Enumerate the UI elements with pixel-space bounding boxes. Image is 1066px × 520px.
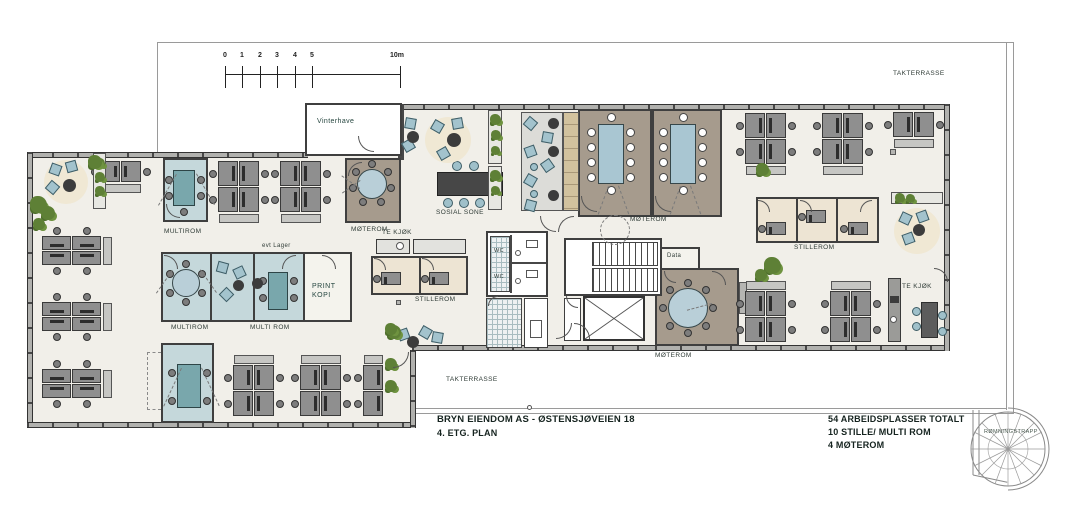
kitchen-unit-detail: [890, 296, 899, 303]
coffee-table: [548, 118, 559, 129]
meeting-chair: [626, 143, 635, 152]
coffee-table: [447, 133, 461, 147]
scale-tick: [312, 66, 313, 88]
wall-left-wing-east-low: [410, 350, 416, 428]
office-chair: [290, 294, 298, 302]
monitor: [50, 254, 64, 257]
office-chair: [873, 326, 881, 334]
office-chair: [143, 168, 151, 176]
office-chair: [53, 400, 61, 408]
scale-label-0: 0: [223, 52, 227, 59]
label-multirom-mid-1: MULTIROM: [171, 324, 208, 331]
kitchen-counter-left-1: [376, 239, 410, 254]
floor-plan: 0 1 2 3 4 5 10m TAKTERRASSE TAKTERRASSE …: [0, 0, 1066, 520]
desk: [218, 187, 238, 212]
small-box-right-wing: [890, 149, 896, 155]
kitchen-tall-unit-right: [888, 278, 901, 342]
desk-return-panel: [103, 370, 112, 398]
office-chair: [83, 400, 91, 408]
lounge-chair: [404, 117, 417, 130]
meeting-chair: [626, 158, 635, 167]
kitchen-counter-left-2: [413, 239, 466, 254]
meeting-chair: [698, 173, 707, 182]
office-chair: [209, 170, 217, 178]
lounge-chair: [469, 161, 479, 171]
monitor: [844, 322, 847, 337]
meeting-chair: [679, 113, 688, 122]
terrace-outline-bottom-1: [416, 408, 1007, 409]
office-chair: [83, 333, 91, 341]
desk-return-panel: [101, 184, 141, 193]
lounge-chair: [530, 190, 538, 198]
office-chair: [813, 148, 821, 156]
desk: [233, 391, 253, 416]
lounge-chair: [938, 311, 947, 320]
office-chair: [788, 326, 796, 334]
desk: [72, 236, 101, 250]
lounge-chair: [912, 307, 921, 316]
office-chair: [354, 400, 362, 408]
office-chair: [666, 322, 674, 330]
label-te-kjok-left: TE KJØK: [382, 229, 412, 236]
label-romningstrapp: RØMNINGSTRAPP: [984, 429, 1038, 435]
desk-return-panel: [364, 355, 383, 364]
office-chair: [271, 170, 279, 178]
banquette-wood-shelf: [563, 112, 579, 211]
office-chair: [736, 300, 744, 308]
lounge-chair: [475, 198, 485, 208]
office-chair: [702, 322, 710, 330]
desk-return-panel: [301, 355, 341, 364]
monitor: [294, 166, 297, 181]
lounge-chair: [938, 327, 947, 336]
scale-tick: [277, 66, 278, 88]
desk: [822, 113, 842, 138]
meeting-chair: [626, 173, 635, 182]
office-chair: [421, 275, 429, 283]
desk: [822, 139, 842, 164]
wc-sink-1: [515, 250, 521, 256]
plant: [385, 380, 397, 392]
office-chair: [323, 170, 331, 178]
wall-left-wing-west: [27, 152, 33, 428]
monitor: [769, 118, 772, 133]
label-sosial-sone: SOSIAL SONE: [436, 209, 484, 216]
coffee-table: [407, 131, 419, 143]
desk: [280, 187, 300, 212]
label-multirom-top: MULTIROM: [164, 228, 201, 235]
office-chair: [368, 160, 376, 168]
scale-tick: [225, 66, 226, 88]
office-chair: [873, 300, 881, 308]
office-chair: [865, 122, 873, 130]
office-chair: [168, 369, 176, 377]
monitor: [304, 192, 307, 207]
meeting-chair: [698, 128, 707, 137]
lounge-chair: [431, 331, 444, 344]
meeting-chair: [626, 128, 635, 137]
monitor: [324, 396, 327, 411]
wc-divider-h: [512, 262, 546, 264]
terrace-outline-left: [157, 42, 158, 154]
coffee-table: [548, 190, 559, 201]
desk: [300, 391, 320, 416]
office-chair: [813, 122, 821, 130]
desk: [42, 369, 71, 383]
office-chair: [736, 148, 744, 156]
kitchen-sink-left: [396, 242, 404, 250]
meeting-chair: [587, 158, 596, 167]
desk-return-panel: [746, 281, 786, 290]
label-data: Data: [667, 253, 681, 259]
monitor: [314, 370, 317, 385]
plant: [490, 114, 501, 125]
plant: [33, 218, 45, 230]
coffee-table: [233, 280, 244, 291]
monitor: [247, 370, 250, 385]
dashed-zone-multirom-bottom: [147, 352, 161, 410]
label-vinterhave: Vinterhave: [317, 118, 354, 125]
desk: [233, 365, 253, 390]
stair-treads-lower: [592, 268, 658, 292]
terrace-outline-top: [157, 42, 1013, 43]
meeting-chair: [587, 143, 596, 152]
terrace-outline-right-outer: [1013, 42, 1014, 412]
office-chair: [865, 148, 873, 156]
scale-label-5: 5: [310, 52, 314, 59]
plant: [95, 186, 105, 196]
conference-table: [598, 124, 624, 184]
office-chair: [83, 360, 91, 368]
monitor: [50, 387, 64, 390]
office-chair: [384, 168, 392, 176]
office-chair: [261, 196, 269, 204]
desk: [745, 317, 765, 342]
monitor: [854, 296, 857, 311]
monitor: [257, 370, 260, 385]
office-chair: [83, 267, 91, 275]
scale-label-2: 2: [258, 52, 262, 59]
lounge-chair: [530, 163, 538, 171]
label-takterrasse-bottom: TAKTERRASSE: [446, 376, 498, 383]
desk: [363, 391, 383, 416]
desk: [42, 302, 71, 316]
survey-dot: [527, 405, 532, 410]
office-chair: [884, 121, 892, 129]
office-chair: [83, 293, 91, 301]
meeting-chair: [659, 128, 668, 137]
wc-toilet-2: [526, 270, 538, 278]
spiral-stair: [965, 405, 1065, 500]
desk: [280, 161, 300, 186]
plant: [906, 194, 915, 203]
plant: [491, 186, 500, 195]
desk: [218, 161, 238, 186]
office-chair: [168, 397, 176, 405]
label-multirom-mid-2: MULTI ROM: [250, 324, 290, 331]
meeting-table-round: [172, 269, 200, 297]
scale-label-3: 3: [275, 52, 279, 59]
monitor: [851, 227, 854, 234]
label-wc-2: WC: [494, 274, 504, 280]
monitor: [759, 322, 762, 337]
desk-return-panel: [281, 214, 321, 223]
meeting-chair: [587, 173, 596, 182]
monitor: [917, 117, 920, 132]
meeting-table-round: [668, 288, 708, 328]
desk: [893, 112, 913, 137]
office-chair: [166, 289, 174, 297]
multi-room-table: [268, 272, 288, 310]
desk: [42, 236, 71, 250]
scale-tick: [242, 66, 243, 88]
office-chair: [53, 267, 61, 275]
monitor: [80, 310, 94, 313]
lounge-chair: [541, 131, 554, 144]
office-chair: [276, 374, 284, 382]
label-te-kjok-right: TE KJØK: [902, 283, 932, 290]
desk: [363, 365, 383, 390]
office-chair: [343, 374, 351, 382]
plant: [385, 323, 397, 335]
kitchen-sink-right: [890, 316, 897, 323]
monitor: [80, 244, 94, 247]
monitor: [809, 215, 812, 222]
plant: [491, 146, 500, 155]
meeting-chair: [698, 158, 707, 167]
office-chair: [182, 298, 190, 306]
office-chair: [377, 198, 385, 206]
label-kopi: KOPI: [312, 292, 331, 299]
plant: [490, 170, 501, 181]
office-chair: [182, 260, 190, 268]
coffee-table: [252, 278, 263, 289]
plant: [764, 257, 781, 274]
desk-return-panel: [831, 281, 871, 290]
core-fixture: [530, 320, 542, 338]
office-chair: [83, 227, 91, 235]
monitor: [846, 118, 849, 133]
plant: [491, 130, 501, 140]
desk-return-panel: [219, 214, 259, 223]
room-stillerom-right-3: [836, 197, 879, 243]
scale-label-end: 10m: [390, 52, 404, 59]
desk-return-panel: [103, 237, 112, 265]
dashed-projection-circle: [600, 215, 630, 245]
wall-left-wing-bottom: [27, 422, 416, 428]
scale-tick: [400, 66, 401, 88]
monitor: [294, 192, 297, 207]
office-chair: [197, 192, 205, 200]
office-chair: [53, 293, 61, 301]
desk: [745, 113, 765, 138]
monitor: [304, 166, 307, 181]
monitor: [114, 166, 117, 177]
monitor: [247, 396, 250, 411]
lounge-chair: [451, 117, 464, 130]
office-chair: [373, 275, 381, 283]
monitor: [50, 320, 64, 323]
label-stillerom-left: STILLEROM: [415, 296, 455, 303]
monitor: [80, 254, 94, 257]
stair-treads-upper: [592, 242, 658, 266]
office-chair: [840, 225, 848, 233]
summary-line2: 10 STILLE/ MULTI ROM: [828, 427, 931, 437]
desk: [300, 365, 320, 390]
desk-return-panel: [823, 166, 863, 175]
monitor: [257, 396, 260, 411]
plant: [895, 193, 905, 203]
monitor: [907, 117, 910, 132]
office-chair: [709, 304, 717, 312]
office-chair: [224, 400, 232, 408]
scale-bar: 0 1 2 3 4 5 10m: [225, 52, 410, 92]
monitor: [759, 144, 762, 159]
monitor: [50, 310, 64, 313]
desk: [745, 139, 765, 164]
monitor: [769, 322, 772, 337]
office-chair: [788, 148, 796, 156]
monitor: [80, 387, 94, 390]
office-chair: [53, 227, 61, 235]
monitor: [769, 296, 772, 311]
monitor: [769, 227, 772, 234]
meeting-chair: [587, 128, 596, 137]
monitor: [854, 322, 857, 337]
office-chair: [354, 374, 362, 382]
monitor: [314, 396, 317, 411]
label-wc-1: WC: [494, 248, 504, 254]
office-chair: [53, 333, 61, 341]
monitor: [769, 144, 772, 159]
office-chair: [261, 170, 269, 178]
conference-table: [670, 124, 696, 184]
desk-return-panel: [894, 139, 934, 148]
office-chair: [798, 213, 806, 221]
meeting-chair: [607, 113, 616, 122]
room-vinterhave: [305, 103, 402, 156]
meeting-chair: [698, 143, 707, 152]
office-chair: [276, 400, 284, 408]
coffee-table: [913, 224, 925, 236]
label-moterom-center: MØTEROM: [630, 216, 667, 223]
monitor: [232, 192, 235, 207]
office-chair: [203, 397, 211, 405]
office-chair: [198, 289, 206, 297]
monitor: [377, 396, 380, 411]
kitchen-island-right: [921, 302, 938, 338]
office-chair: [684, 279, 692, 287]
plant: [756, 163, 769, 176]
office-chair: [291, 374, 299, 382]
office-chair: [659, 304, 667, 312]
office-chair: [271, 196, 279, 204]
monitor: [324, 370, 327, 385]
meeting-chair: [659, 143, 668, 152]
desk: [745, 291, 765, 316]
wc-toilet-1: [526, 240, 538, 248]
coffee-table: [548, 146, 559, 157]
office-chair: [788, 122, 796, 130]
summary-line1: 54 ARBEIDSPLASSER TOTALT: [828, 414, 964, 424]
monitor: [80, 377, 94, 380]
terrace-outline-right-inner: [1006, 42, 1007, 410]
office-chair: [684, 329, 692, 337]
lounge-chair: [443, 198, 453, 208]
label-takterrasse-top: TAKTERRASSE: [893, 70, 945, 77]
lounge-chair: [459, 198, 469, 208]
scale-label-4: 4: [293, 52, 297, 59]
lounge-chair: [452, 161, 462, 171]
office-chair: [736, 122, 744, 130]
plant: [88, 155, 102, 169]
scale-label-1: 1: [240, 52, 244, 59]
office-chair: [936, 121, 944, 129]
label-stillerom-right: STILLEROM: [794, 244, 834, 251]
desk: [72, 302, 101, 316]
meeting-chair: [659, 173, 668, 182]
office-chair: [736, 326, 744, 334]
office-chair: [702, 286, 710, 294]
monitor: [432, 277, 435, 284]
lounge-chair: [912, 322, 921, 331]
plant: [755, 269, 767, 281]
office-chair: [290, 277, 298, 285]
office-chair: [788, 300, 796, 308]
label-evt-lager: evt Lager: [262, 243, 291, 249]
meeting-chair: [659, 158, 668, 167]
desk: [72, 369, 101, 383]
plant: [95, 172, 105, 182]
scale-tick: [295, 66, 296, 88]
small-box-mid: [396, 300, 401, 305]
elevator-shaft: [583, 296, 645, 341]
office-chair: [291, 400, 299, 408]
office-chair: [165, 192, 173, 200]
monitor: [80, 320, 94, 323]
monitor: [759, 118, 762, 133]
wc-sink-2: [515, 278, 521, 284]
monitor: [846, 144, 849, 159]
desk-return-panel: [234, 355, 274, 364]
scale-tick: [260, 66, 261, 88]
office-chair: [224, 374, 232, 382]
monitor: [124, 166, 127, 177]
office-chair: [821, 300, 829, 308]
office-chair: [180, 208, 188, 216]
office-chair: [821, 326, 829, 334]
office-chair: [259, 294, 267, 302]
wc-divider-v: [510, 235, 512, 293]
summary-line3: 4 MØTEROM: [828, 440, 884, 450]
office-chair: [53, 360, 61, 368]
label-moterom-south: MØTEROM: [655, 352, 692, 359]
office-chair: [343, 400, 351, 408]
title-line2: 4. ETG. PLAN: [437, 428, 497, 438]
monitor: [836, 144, 839, 159]
monitor: [232, 166, 235, 181]
monitor: [50, 377, 64, 380]
desk: [830, 317, 850, 342]
office-chair: [323, 196, 331, 204]
monitor: [836, 118, 839, 133]
desk: [830, 291, 850, 316]
monitor: [377, 370, 380, 385]
monitor: [242, 192, 245, 207]
coffee-table: [63, 179, 76, 192]
label-print: PRINT: [312, 283, 336, 290]
wc-tiled-floor: [490, 236, 510, 292]
